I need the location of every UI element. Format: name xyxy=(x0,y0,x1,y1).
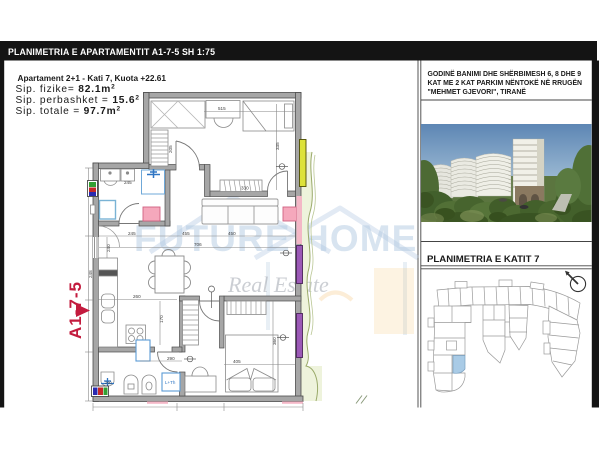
svg-text:Real Estate: Real Estate xyxy=(227,272,329,297)
svg-text:Sip. perbashket = 15.62: Sip. perbashket = 15.62 xyxy=(16,95,140,107)
svg-text:260: 260 xyxy=(133,294,141,299)
svg-text:Sip. fizike= 82.1m2: Sip. fizike= 82.1m2 xyxy=(16,84,116,96)
svg-text:706: 706 xyxy=(194,242,202,247)
svg-text:290: 290 xyxy=(105,380,112,385)
svg-text:455: 455 xyxy=(182,231,190,236)
svg-text:GODINË BANIMI DHE SHËRBIMESH 6: GODINË BANIMI DHE SHËRBIMESH 6, 8 DHE 9 xyxy=(428,70,582,78)
svg-text:290: 290 xyxy=(167,356,175,361)
svg-text:405: 405 xyxy=(233,359,241,364)
svg-text:248: 248 xyxy=(88,270,93,278)
svg-text:PLANIMETRIA E APARTAMENTIT A1-: PLANIMETRIA E APARTAMENTIT A1-7-5 SH 1:7… xyxy=(8,47,215,57)
svg-text:205: 205 xyxy=(168,145,173,153)
svg-text:"MEHMET GJEVORI", TIRANË: "MEHMET GJEVORI", TIRANË xyxy=(428,88,527,96)
svg-text:240: 240 xyxy=(106,244,111,252)
svg-text:KAT ME 2 KAT PARKIM NËNTOKË NË: KAT ME 2 KAT PARKIM NËNTOKË NË RRUGËN xyxy=(428,79,583,87)
svg-text:330: 330 xyxy=(241,186,249,191)
svg-text:335: 335 xyxy=(275,142,280,150)
svg-text:450: 450 xyxy=(228,231,236,236)
svg-text:515: 515 xyxy=(218,106,226,111)
svg-text:170: 170 xyxy=(159,315,164,323)
svg-text:245: 245 xyxy=(128,231,136,236)
svg-text:Sip. totale = 97.7m2: Sip. totale = 97.7m2 xyxy=(16,106,121,118)
svg-text:360: 360 xyxy=(272,337,277,345)
svg-text:L+Th: L+Th xyxy=(165,380,176,385)
svg-text:245: 245 xyxy=(124,180,132,185)
svg-text:PLANIMETRIA E KATIT 7: PLANIMETRIA E KATIT 7 xyxy=(427,254,539,265)
svg-text:Apartament 2+1 - Kati 7, Kuota: Apartament 2+1 - Kati 7, Kuota +22.61 xyxy=(18,73,167,83)
